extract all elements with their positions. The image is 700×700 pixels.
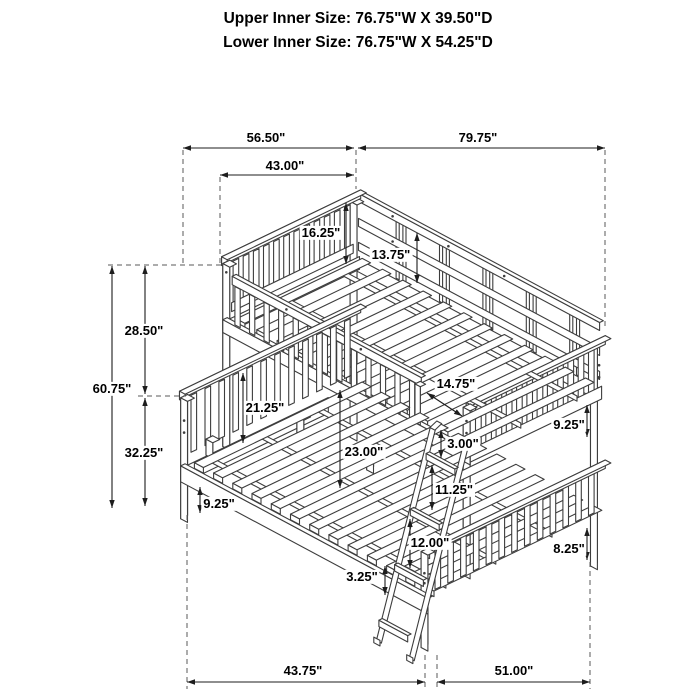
dim-label-bunk-gap-rear: 21.25" <box>244 401 287 415</box>
dim-label-underbed-clearance-right: 8.25" <box>551 542 586 556</box>
dim-label-rail-height: 3.00" <box>445 437 480 451</box>
dim-label-guardrail-above-deck: 13.75" <box>370 248 413 262</box>
dim-label-ladder-step-spacing: 12.00" <box>409 536 452 550</box>
dim-label-top-span-right: 79.75" <box>457 131 500 145</box>
dim-label-bunk-gap-center: 23.00" <box>343 445 386 459</box>
dim-label-bottom-span-right: 51.00" <box>493 664 536 678</box>
dim-label-top-span-left: 56.50" <box>245 131 288 145</box>
bunk-bed-dimension-diagram: Upper Inner Size: 76.75"W X 39.50"D Lowe… <box>0 0 700 700</box>
dim-label-headboard-above-rail: 16.25" <box>300 226 343 240</box>
dim-label-ladder-step-gap: 11.25" <box>433 483 475 497</box>
bunk-bed-line-drawing <box>0 0 700 700</box>
dim-label-overall-height: 60.75" <box>91 382 134 396</box>
dim-label-ladder-bottom-step: 3.25" <box>344 570 379 584</box>
dim-label-top-span-inner: 43.00" <box>264 159 307 173</box>
dim-label-ladder-opening-width: 14.75" <box>435 377 478 391</box>
title-upper-inner-size: Upper Inner Size: 76.75"W X 39.50"D <box>224 10 493 28</box>
dim-label-upper-section-height: 28.50" <box>123 324 166 338</box>
dim-label-underbed-clearance-left: 9.25" <box>201 497 236 511</box>
dim-label-bottom-span-left: 43.75" <box>282 664 325 678</box>
dim-label-lower-section-height: 32.25" <box>123 446 166 460</box>
title-lower-inner-size: Lower Inner Size: 76.75"W X 54.25"D <box>223 34 493 52</box>
dim-label-footboard-gap-right: 9.25" <box>551 418 586 432</box>
